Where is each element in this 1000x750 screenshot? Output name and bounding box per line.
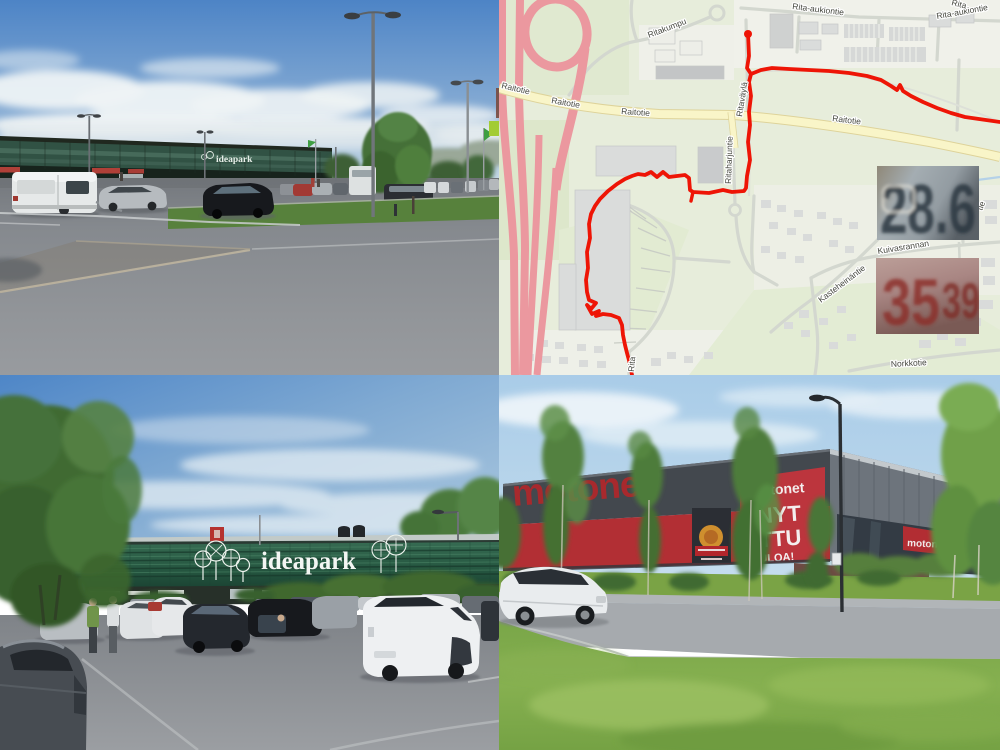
svg-text:39: 39 xyxy=(942,273,980,329)
svg-text:Rita: Rita xyxy=(626,356,637,372)
svg-text:ideapark: ideapark xyxy=(216,155,253,165)
svg-text:ideapark: ideapark xyxy=(261,548,356,575)
svg-text:28.6: 28.6 xyxy=(880,170,976,248)
svg-text:Norkkotie: Norkkotie xyxy=(891,357,928,369)
svg-text:35: 35 xyxy=(882,265,940,339)
svg-text:Ritaharjuntie: Ritaharjuntie xyxy=(723,136,735,184)
svg-text:Raitotie: Raitotie xyxy=(621,106,651,118)
